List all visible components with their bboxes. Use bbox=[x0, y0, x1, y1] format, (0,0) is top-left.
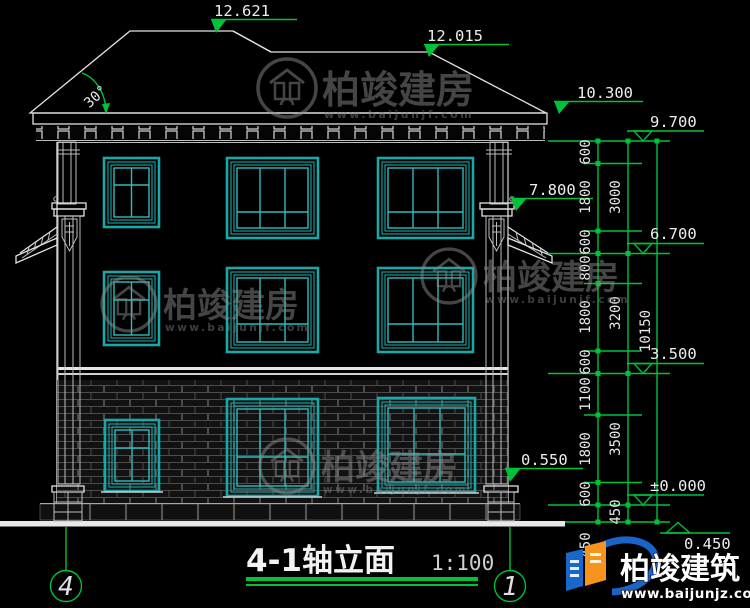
watermark-url: www.baijunjf.com bbox=[323, 484, 468, 496]
window-2f-right bbox=[378, 268, 473, 352]
elevation-value: 10.300 bbox=[577, 84, 633, 102]
logo-window bbox=[570, 567, 579, 570]
elevation-value: 6.700 bbox=[650, 225, 697, 243]
logo-window bbox=[570, 560, 579, 563]
dim-col1-0: 600 bbox=[578, 139, 594, 164]
watermark-url: www.baijunjf.com bbox=[165, 322, 310, 334]
elevation-value: 0.550 bbox=[521, 451, 568, 469]
title-underline-thin bbox=[246, 584, 478, 586]
watermark-name: 柏竣建房 bbox=[322, 68, 474, 112]
axis-label-right: 1 bbox=[502, 572, 518, 602]
elevation-marker-6700: 6.700 bbox=[627, 225, 704, 254]
window-3f-right bbox=[378, 158, 473, 238]
logo-building-orange bbox=[585, 541, 606, 586]
watermark-logo-icon bbox=[102, 277, 156, 331]
dim-col2-0: 3000 bbox=[608, 180, 624, 214]
dim-col1-6: 1100 bbox=[578, 377, 594, 411]
elevation-marker-ridge-main: 12.621 bbox=[211, 2, 297, 33]
elevation-value: 12.621 bbox=[214, 2, 270, 20]
elevation-value: 3.500 bbox=[650, 345, 697, 363]
roof-slope-annotation: 30° bbox=[81, 73, 111, 114]
watermark-top: 柏竣建房 www.baijunjf.com bbox=[258, 59, 474, 121]
dim-col1-7: 1800 bbox=[578, 432, 594, 466]
watermark-url: www.baijunjf.com bbox=[485, 294, 630, 306]
elevation-marker-zero: ±0.000 bbox=[627, 477, 706, 505]
elevation-marker-ridge-secondary: 12.015 bbox=[424, 27, 509, 57]
window-3f-middle bbox=[227, 158, 318, 238]
dim-col2-3: 450 bbox=[608, 499, 624, 524]
axis-bubble-4: 4 bbox=[51, 527, 82, 602]
elevation-value: ±0.000 bbox=[650, 477, 706, 495]
plinth-course bbox=[40, 504, 520, 521]
elevation-value: 9.700 bbox=[650, 113, 697, 131]
watermark-logo-icon bbox=[422, 249, 476, 303]
watermark-name: 柏竣建房 bbox=[483, 258, 619, 298]
emblem-left bbox=[62, 219, 77, 251]
logo-window bbox=[590, 553, 601, 556]
string-course-band bbox=[57, 367, 508, 375]
watermark-url: www.baijunjf.com bbox=[324, 108, 474, 121]
elevation-marker-eave: 10.300 bbox=[554, 84, 643, 114]
dim-col1-8: 600 bbox=[578, 481, 594, 506]
logo-window bbox=[590, 560, 601, 563]
axis-bubble-1: 1 bbox=[495, 527, 526, 602]
dim-col1-2: 600 bbox=[578, 229, 594, 254]
dim-col2-2: 3500 bbox=[608, 422, 624, 456]
brand-name: 柏竣建筑 bbox=[620, 552, 740, 587]
elevation-drawing: 30° 12.621 12.015 10.300 7.800 0.550 bbox=[0, 0, 750, 608]
elevation-marker-minus-450: 0.450 bbox=[660, 523, 731, 554]
drawing-title: 4-1轴立面 1:100 bbox=[246, 543, 494, 586]
emblem-right bbox=[489, 219, 504, 251]
title-underline-thick bbox=[246, 577, 478, 581]
dim-col1-5: 600 bbox=[578, 349, 594, 374]
title-text: 4-1轴立面 bbox=[246, 543, 395, 579]
elevation-marker-9700: 9.700 bbox=[627, 113, 704, 141]
watermark-name: 柏竣建房 bbox=[321, 448, 457, 488]
elevation-value: 12.015 bbox=[427, 27, 483, 45]
elevation-value: 7.800 bbox=[529, 181, 576, 199]
logo-window bbox=[570, 574, 579, 577]
window-3f-small bbox=[104, 158, 159, 227]
awning-left bbox=[16, 227, 57, 263]
dim-col1-1: 1800 bbox=[578, 180, 594, 214]
watermark-name: 柏竣建房 bbox=[163, 286, 299, 326]
watermark-logo-icon bbox=[258, 59, 316, 117]
ground-line bbox=[0, 521, 565, 527]
cad-canvas: 30° 12.621 12.015 10.300 7.800 0.550 bbox=[0, 0, 750, 608]
elevation-value: 0.450 bbox=[684, 535, 731, 553]
title-scale: 1:100 bbox=[431, 551, 494, 575]
axis-label-left: 4 bbox=[58, 572, 74, 602]
watermark-mid-left: 柏竣建房 www.baijunjf.com bbox=[102, 277, 310, 334]
brand-url: www.baijunjz.com bbox=[621, 586, 750, 602]
elevation-marker-plinth: 0.550 bbox=[505, 451, 583, 482]
